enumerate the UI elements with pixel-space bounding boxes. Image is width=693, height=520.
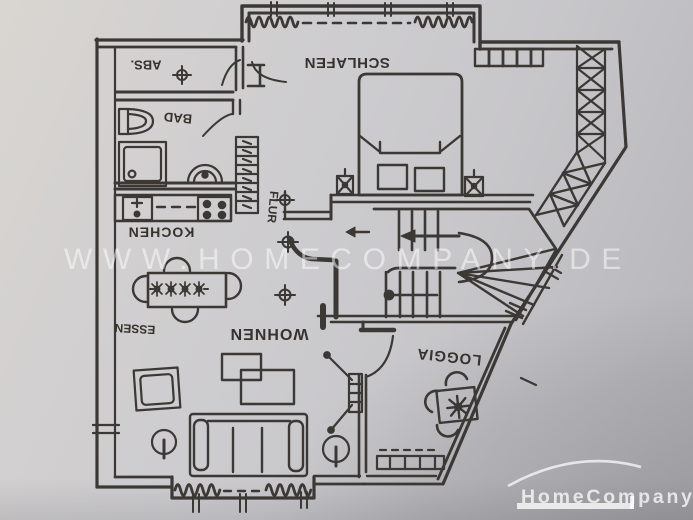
svg-text:ABS.: ABS. [130, 58, 161, 73]
svg-text:SCHLAFEN: SCHLAFEN [304, 54, 390, 71]
svg-text:FLUR: FLUR [264, 191, 281, 224]
svg-text:WWW.HOMECOMPANY.DE: WWW.HOMECOMPANY.DE [64, 243, 632, 276]
svg-text:BAD: BAD [163, 109, 192, 126]
svg-text:WOHNEN: WOHNEN [230, 325, 309, 342]
svg-text:LOGGIA: LOGGIA [416, 345, 483, 369]
svg-text:ESSEN: ESSEN [114, 321, 155, 337]
svg-text:KOCHEN: KOCHEN [128, 224, 195, 240]
